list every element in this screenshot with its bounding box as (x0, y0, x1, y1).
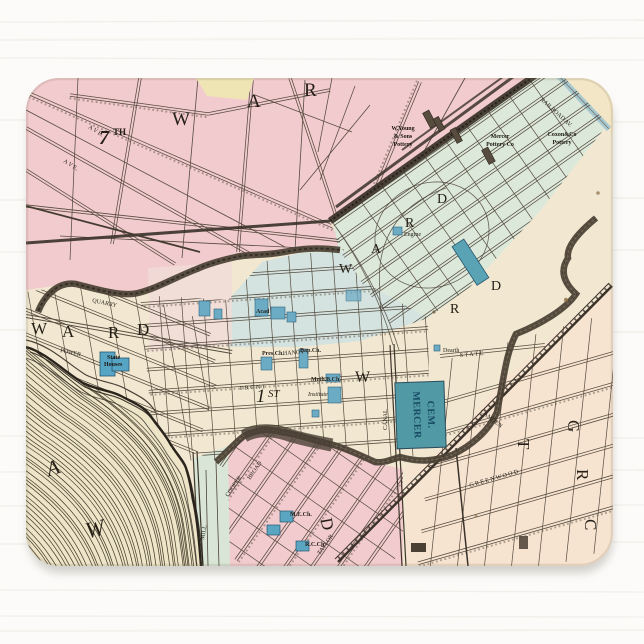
svg-text:Pottery Co: Pottery Co (486, 142, 514, 148)
svg-text:G: G (564, 420, 583, 432)
svg-text:MERCER: MERCER (410, 391, 423, 439)
svg-text:Engine: Engine (404, 232, 421, 238)
svg-text:R: R (573, 469, 592, 481)
svg-text:R: R (405, 216, 415, 231)
svg-text:Meth.B.Ch.: Meth.B.Ch. (311, 377, 341, 383)
svg-text:Bap.Ch.: Bap.Ch. (300, 348, 322, 354)
svg-text:T: T (514, 439, 533, 450)
svg-text:D: D (491, 279, 501, 294)
svg-text:R: R (304, 80, 317, 101)
svg-text:ST: ST (268, 388, 281, 400)
svg-text:CANAL: CANAL (383, 409, 389, 430)
svg-text:Coxon&Co: Coxon&Co (547, 132, 576, 138)
svg-text:Houses: Houses (104, 362, 123, 368)
svg-text:Acad: Acad (256, 309, 270, 315)
svg-text:W.Young: W.Young (391, 126, 414, 132)
svg-text:A: A (62, 322, 75, 341)
svg-text:R.C.Ch.: R.C.Ch. (305, 542, 326, 548)
svg-text:State: State (107, 355, 120, 361)
svg-text:Pottery: Pottery (394, 142, 413, 148)
svg-text:& Sons: & Sons (394, 134, 413, 140)
svg-text:D: D (137, 320, 149, 339)
svg-text:Pres.Ch.: Pres.Ch. (262, 351, 284, 357)
svg-text:A: A (247, 91, 261, 112)
svg-text:Mercer: Mercer (491, 134, 510, 140)
svg-text:Dearth: Dearth (443, 348, 459, 354)
svg-text:Pottery: Pottery (553, 140, 572, 146)
svg-text:C: C (581, 519, 600, 530)
svg-text:CEM.: CEM. (425, 401, 437, 429)
svg-text:M.E.Ch.: M.E.Ch. (290, 512, 312, 518)
svg-text:TH: TH (113, 127, 126, 137)
svg-text:W: W (355, 369, 371, 386)
svg-text:D: D (437, 192, 447, 207)
svg-text:A: A (371, 242, 382, 257)
svg-text:W: W (172, 109, 190, 130)
svg-text:W: W (339, 262, 353, 277)
svg-text:R: R (108, 323, 120, 342)
svg-text:Institute: Institute (307, 392, 328, 398)
svg-text:W: W (31, 319, 48, 338)
svg-text:R: R (450, 302, 460, 317)
